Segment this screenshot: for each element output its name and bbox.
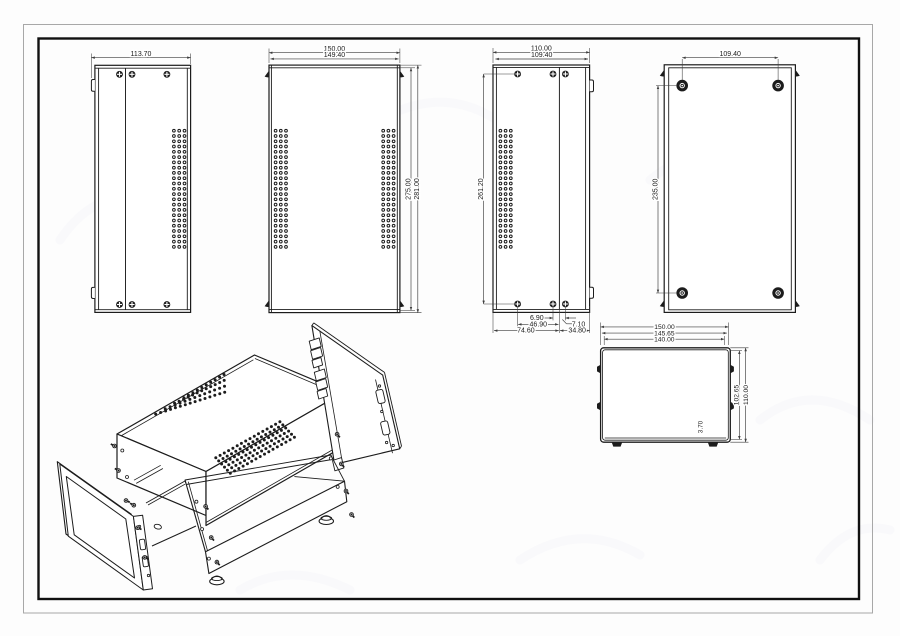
svg-text:113.70: 113.70 [131,51,152,58]
svg-text:281.00: 281.00 [414,178,421,200]
svg-text:34.80: 34.80 [568,328,586,335]
svg-text:140.00: 140.00 [654,336,675,343]
svg-text:275.00: 275.00 [405,178,412,200]
svg-text:261.20: 261.20 [478,178,485,200]
svg-text:3.70: 3.70 [698,420,705,433]
svg-text:74.60: 74.60 [517,328,535,335]
svg-text:109.40: 109.40 [719,51,741,58]
svg-text:149.40: 149.40 [324,52,346,59]
svg-text:109.40: 109.40 [531,52,553,59]
svg-text:235.00: 235.00 [652,178,659,200]
svg-text:102.65: 102.65 [734,384,741,405]
svg-text:110.00: 110.00 [743,385,750,405]
